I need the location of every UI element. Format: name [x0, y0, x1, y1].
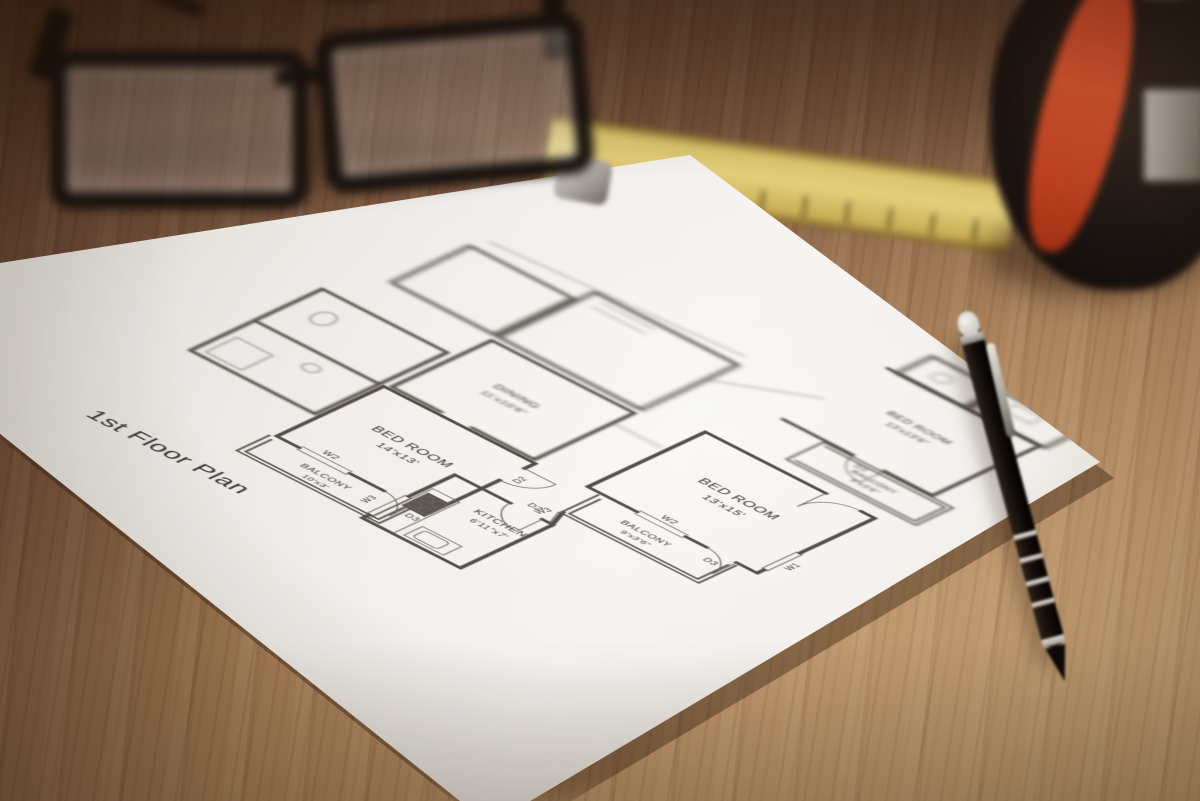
eyeglasses — [30, 0, 575, 215]
door-label-d3-center: D3 — [700, 557, 720, 567]
pencil-ring — [1026, 576, 1050, 587]
pencil-ring — [1019, 553, 1043, 564]
door-label-d2-bedroom: D2 — [510, 475, 530, 485]
kitchen-sink — [404, 526, 462, 555]
plan-title: 1st Floor Plan — [79, 408, 256, 497]
pencil-clip — [985, 342, 1015, 438]
tape-measure-belt-clip — [1140, 85, 1200, 185]
tape-measure — [990, 0, 1200, 290]
pencil-ring — [1013, 530, 1037, 541]
window-label-w2-left: W2 — [320, 450, 342, 461]
eyeglasses-temple-arm — [63, 0, 207, 20]
window-label-w2-center: W2 — [659, 514, 681, 525]
eyeglasses-right-lens — [313, 11, 595, 196]
eyeglasses-left-lens — [50, 50, 309, 209]
pencil-ring — [1031, 597, 1055, 608]
photo-scene: DINING 11'x10'6" BED ROOM 13'x13'6" D3 B… — [0, 0, 1200, 801]
window-label-w3-kitchen: W3 — [358, 494, 379, 504]
mechanical-pencil — [860, 300, 1030, 730]
eyeglasses-temple-arm — [259, 0, 391, 5]
